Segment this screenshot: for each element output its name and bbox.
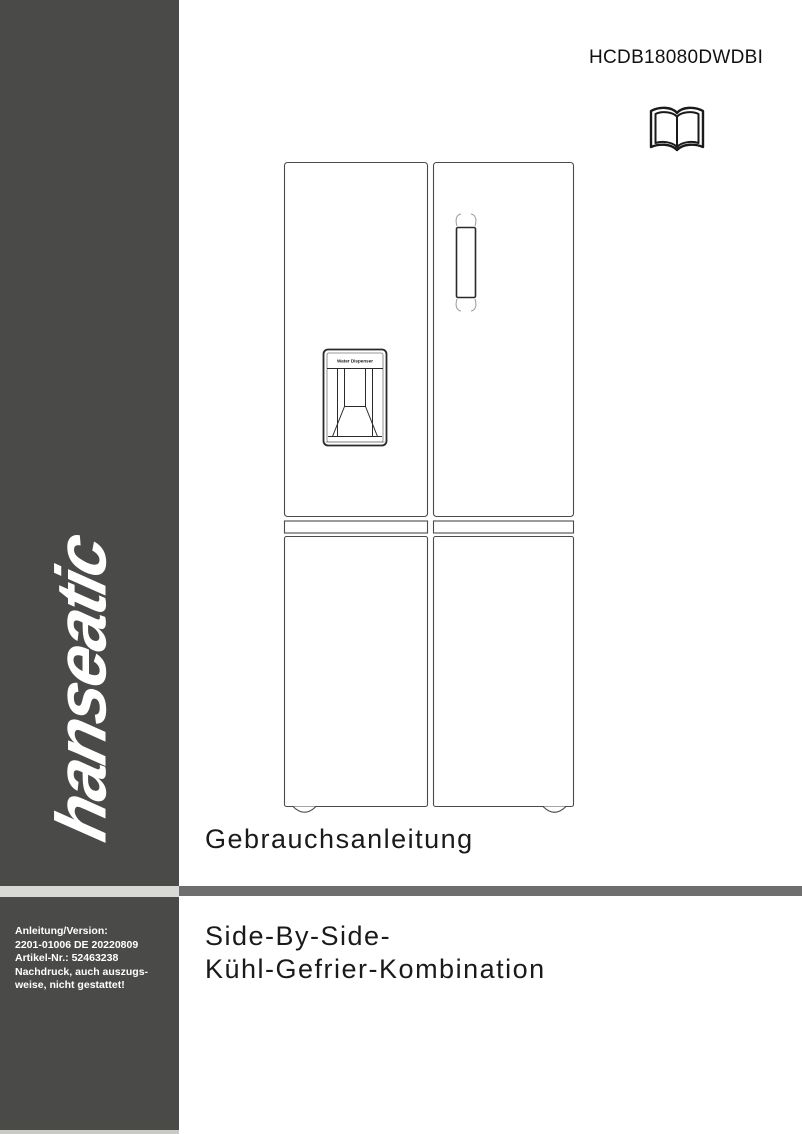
product-title: Side-By-Side- Kühl-Gefrier-Kombination (205, 920, 546, 986)
imprint-block: Anleitung/Version: 2201-01006 DE 2022080… (0, 897, 179, 1130)
fridge-lower-right-door (434, 537, 574, 807)
fridge-middle-band-left (285, 521, 428, 533)
imprint-line-article-number: Artikel-Nr.: 52463238 (15, 952, 173, 966)
page-bottom-edge (0, 1130, 179, 1134)
fridge-left-foot (293, 807, 316, 813)
imprint-line-version-label: Anleitung/Version: (15, 925, 173, 939)
fridge-upper-left-door (285, 163, 428, 517)
book-left-page (656, 112, 678, 147)
dispenser-label: Water Dispenser (337, 359, 373, 364)
manual-type-heading: Gebrauchsanleitung (205, 824, 474, 855)
sidebar-divider-gap (0, 886, 179, 897)
brand-sidebar: hanseatic (0, 0, 179, 886)
product-title-line-1: Side-By-Side- (205, 920, 546, 953)
fridge-lower-left-door (285, 537, 428, 807)
product-title-line-2: Kühl-Gefrier-Kombination (205, 953, 546, 986)
section-divider-bar (179, 886, 802, 896)
book-right-page (677, 112, 699, 147)
imprint-line-version-number: 2201-01006 DE 20220809 (15, 939, 173, 953)
imprint-line-copyright-2: weise, nicht gestattet! (15, 979, 173, 993)
open-book-icon (646, 102, 708, 157)
fridge-illustration: Water Dispenser (280, 155, 580, 820)
model-number: HCDB18080DWDBI (589, 47, 763, 69)
fridge-right-foot (543, 807, 566, 813)
fridge-door-handle (457, 228, 476, 298)
manual-cover-page: hanseatic Anleitung/Version: 2201-01006 … (0, 0, 802, 1134)
fridge-upper-right-door (434, 163, 574, 517)
hanseatic-logo: hanseatic (42, 528, 123, 849)
imprint-line-copyright-1: Nachdruck, auch auszugs- (15, 966, 173, 980)
water-dispenser-outline (324, 350, 387, 446)
fridge-middle-band-right (434, 521, 574, 533)
